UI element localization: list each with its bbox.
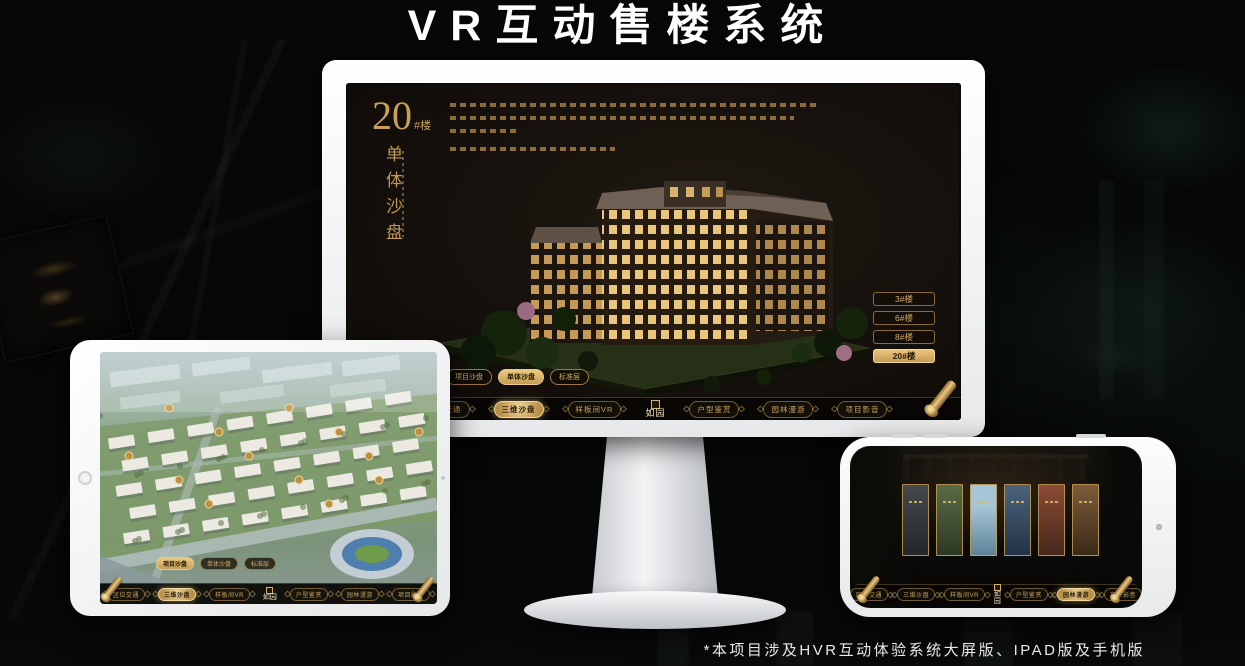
brand-logo-text: 如园 bbox=[645, 409, 665, 418]
view-tab-group: 项目沙盘 单体沙盘 标准层 bbox=[446, 369, 589, 385]
brand-logo: 如园 bbox=[994, 584, 1001, 605]
tablet-view-tab-project-sandbox[interactable]: 项目沙盘 bbox=[156, 557, 194, 570]
nav-item-3d-sandbox[interactable]: 三维沙盘 bbox=[158, 588, 196, 601]
tablet-screen: 项目沙盘 单体沙盘 标准层 区位交通 三维沙盘 样板间VR 如园 户型鉴赏 园林… bbox=[100, 352, 437, 604]
nav-item-floorplan-gallery[interactable]: 户型鉴赏 bbox=[1010, 588, 1048, 601]
brand-logo: 如园 bbox=[645, 400, 665, 418]
gallery-card-building[interactable] bbox=[1004, 484, 1031, 556]
tablet-home-button[interactable] bbox=[78, 471, 92, 485]
description-line bbox=[450, 116, 794, 120]
stadium bbox=[330, 529, 414, 579]
footnote-caption: *本项目涉及HVR互动体验系统大屏版、IPAD版及手机版 bbox=[704, 639, 1145, 660]
gallery-card-skyview[interactable] bbox=[970, 484, 997, 556]
brand-logo-text: 如园 bbox=[263, 594, 277, 601]
nav-item-3d-sandbox[interactable]: 三维沙盘 bbox=[494, 401, 544, 418]
nav-item-garden-roam[interactable]: 园林漫游 bbox=[341, 588, 379, 601]
phone-screen: 区位交通 三维沙盘 样板间VR 如园 户型鉴赏 园林漫游 项目影音 bbox=[850, 446, 1142, 608]
phone-device: 区位交通 三维沙盘 样板间VR 如园 户型鉴赏 园林漫游 项目影音 bbox=[840, 437, 1176, 617]
nav-item-project-video[interactable]: 项目影音 bbox=[837, 401, 887, 418]
nav-item-floorplan-gallery[interactable]: 户型鉴赏 bbox=[290, 588, 328, 601]
nav-item-model-room-vr[interactable]: 样板间VR bbox=[568, 401, 622, 418]
floor-button-6[interactable]: 6#楼 bbox=[873, 311, 935, 325]
poster-canvas: VR互动售楼系统 20#楼 单体沙盘 bbox=[0, 0, 1245, 666]
monitor-stand-base bbox=[524, 591, 786, 629]
phone-volume-button[interactable] bbox=[924, 434, 946, 438]
unit-number-suffix: #楼 bbox=[414, 120, 431, 132]
nav-item-model-room-vr[interactable]: 样板间VR bbox=[209, 588, 250, 601]
monitor-stand-neck bbox=[592, 435, 718, 597]
nav-item-garden-roam[interactable]: 园林漫游 bbox=[763, 401, 813, 418]
description-line bbox=[450, 129, 520, 133]
gallery-card-interior[interactable] bbox=[1072, 484, 1099, 556]
tablet-navbar: 区位交通 三维沙盘 样板间VR 如园 户型鉴赏 园林漫游 项目影音 bbox=[100, 583, 437, 604]
description-line bbox=[450, 103, 816, 107]
brand-logo: 如园 bbox=[263, 587, 277, 601]
unit-subtitle-decoration bbox=[402, 151, 404, 237]
view-tab-unit-sandbox[interactable]: 单体沙盘 bbox=[498, 369, 544, 385]
nav-item-3d-sandbox[interactable]: 三维沙盘 bbox=[897, 588, 935, 601]
tablet-device: 项目沙盘 单体沙盘 标准层 区位交通 三维沙盘 样板间VR 如园 户型鉴赏 园林… bbox=[70, 340, 450, 616]
gallery-card-autumn[interactable] bbox=[1038, 484, 1065, 556]
background-aerial-texture bbox=[975, 30, 1245, 480]
unit-number: 20 bbox=[372, 93, 412, 138]
building-3d-render bbox=[412, 147, 882, 397]
tablet-view-tab-group: 项目沙盘 单体沙盘 标准层 bbox=[156, 557, 276, 570]
floor-button-group: 3#楼 6#楼 8#楼 20#楼 bbox=[873, 292, 935, 363]
gallery-card-courtyard[interactable] bbox=[902, 484, 929, 556]
floor-button-3[interactable]: 3#楼 bbox=[873, 292, 935, 306]
haze-overlay bbox=[100, 352, 437, 412]
gallery-card-garden[interactable] bbox=[936, 484, 963, 556]
tablet-view-tab-unit-sandbox[interactable]: 单体沙盘 bbox=[200, 557, 238, 570]
phone-camera-dot bbox=[1156, 524, 1162, 530]
phone-power-button[interactable] bbox=[1076, 434, 1106, 438]
floor-button-8[interactable]: 8#楼 bbox=[873, 330, 935, 344]
page-title: VR互动售楼系统 bbox=[0, 0, 1245, 52]
unit-heading: 20#楼 bbox=[372, 95, 431, 137]
phone-navbar: 区位交通 三维沙盘 样板间VR 如园 户型鉴赏 园林漫游 项目影音 bbox=[855, 584, 1137, 604]
brand-logo-text: 如园 bbox=[994, 591, 1001, 605]
view-tab-standard-floor[interactable]: 标准层 bbox=[550, 369, 589, 385]
tablet-camera-dot bbox=[441, 476, 445, 480]
tablet-view-tab-standard-floor[interactable]: 标准层 bbox=[244, 557, 276, 570]
nav-item-model-room-vr[interactable]: 样板间VR bbox=[944, 588, 985, 601]
view-tab-project-sandbox[interactable]: 项目沙盘 bbox=[446, 369, 492, 385]
scene-gallery bbox=[902, 484, 1099, 556]
nav-item-floorplan-gallery[interactable]: 户型鉴赏 bbox=[689, 401, 739, 418]
phone-volume-button[interactable] bbox=[892, 434, 914, 438]
floor-button-20-active[interactable]: 20#楼 bbox=[873, 349, 935, 363]
nav-item-garden-roam[interactable]: 园林漫游 bbox=[1057, 588, 1095, 601]
